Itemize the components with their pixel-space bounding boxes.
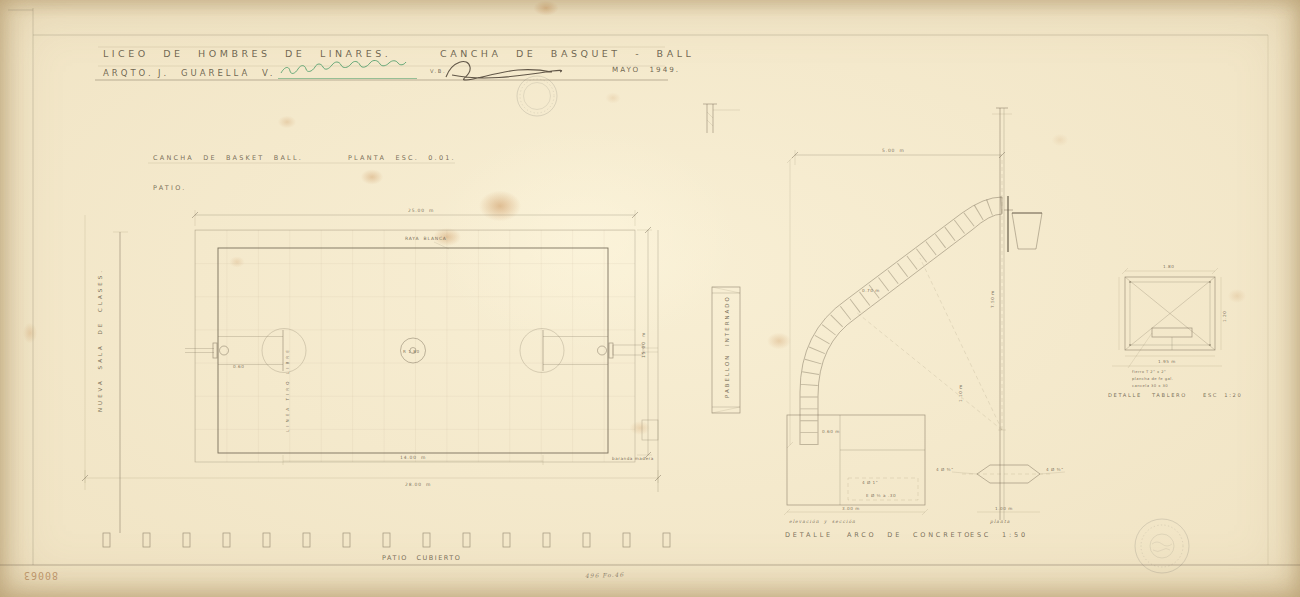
- board-dim-bottom: 1.95 m: [1158, 359, 1176, 364]
- board-dim-top: 1.80: [1163, 264, 1174, 269]
- plate-rebar-left: 4 Ø ¾": [936, 467, 954, 472]
- visa-label: V.B.: [430, 68, 446, 74]
- pavilion-wall: PABELLON INTERNADO: [712, 287, 740, 413]
- arch-caption: DETALLE ARCO DE CONCRETO ESC 1:50: [785, 531, 1028, 539]
- patio-label: PATIO.: [153, 184, 186, 192]
- center-radius-label: R 1.80: [403, 349, 420, 354]
- foundation-elevation: 0.60 m 4 Ø 1" E Ø ¼ a .30 3.00 m elevaci…: [784, 415, 928, 524]
- arch-caption-label: DETALLE: [785, 531, 833, 539]
- colonnade: PATIO CUBIERTO: [103, 533, 670, 562]
- drawing-title: CANCHA DE BASQUET - BALL: [440, 48, 694, 59]
- board-note-2: plancha de fe gal.: [1132, 376, 1173, 381]
- board-dim-right: 1.20: [1222, 311, 1227, 322]
- arch-dim-height: 7.50 m: [990, 290, 995, 308]
- arch-dim-base: 1.10 m: [958, 384, 963, 402]
- architect-name: J. GUARELLA V.: [157, 68, 275, 78]
- drawing-sheet: LICEO DE HOMBRES DE LINARES. CANCHA DE B…: [0, 0, 1300, 597]
- white-line-note: RAYA BLANCA: [405, 236, 447, 241]
- arch-dimensions: 5.00 m 7.50 m 1.10 m: [787, 148, 1005, 448]
- free-throw-note: LINEA TIRO LIBRE: [285, 347, 290, 432]
- board-caption-subject: TABLERO: [1151, 392, 1187, 398]
- rebar-stirrup-note: E Ø ¼ a .30: [866, 493, 896, 498]
- architect-signature: [278, 60, 417, 78]
- arch-dim-span: 5.00 m: [882, 148, 905, 153]
- arch-band: 0.70 m: [800, 197, 1006, 445]
- bottom-annotations: 80063 496 Fo.46: [23, 519, 1189, 581]
- project-title: LICEO DE HOMBRES DE LINARES.: [103, 48, 391, 59]
- plate-rebar-right: 4 Ø ¾": [1046, 467, 1064, 472]
- board-note-1: fierro T 2" x 2": [1132, 369, 1166, 374]
- elevation-label: elevación y sección: [789, 519, 856, 524]
- dim-top: 25.00 m: [408, 208, 434, 213]
- plan-scale: PLANTA ESC. 0.01.: [348, 154, 456, 162]
- board-caption: DETALLE TABLERO ESC 1:20: [1108, 392, 1242, 398]
- dim-right: 15.00 m: [641, 332, 646, 358]
- planta-label: planta: [989, 519, 1010, 524]
- plan-caption: CANCHA DE BASKET BALL.: [153, 154, 303, 162]
- base-plate-plan: 4 Ø ¾" 4 Ø ¾" 1.00 m planta: [936, 465, 1065, 524]
- board-caption-scale: ESC 1:20: [1203, 392, 1242, 398]
- board-note-3: cancela 30 x 30: [1132, 383, 1168, 388]
- arch-detail: PABELLON INTERNADO 0.70 m 5.00 m 7.50 m …: [712, 108, 1065, 539]
- basket-net: [1012, 213, 1042, 249]
- title-block: LICEO DE HOMBRES DE LINARES. CANCHA DE B…: [95, 47, 694, 116]
- arch-caption-subject: ARCO DE CONCRETO: [847, 531, 972, 539]
- column-section-detail: [703, 104, 740, 133]
- plate-dim: 1.00 m: [995, 506, 1013, 511]
- dim-bottom-outer: 28.00 m: [405, 482, 431, 487]
- archive-number: 80063: [23, 570, 58, 581]
- arch-caption-scale: ESC 1:50: [970, 531, 1028, 539]
- hoop-dim-label: 0.60: [233, 364, 244, 369]
- date-label: MAYO 1949.: [612, 65, 680, 74]
- corner-note: baranda madera: [612, 456, 654, 461]
- arch-dim-band: 0.70 m: [862, 288, 880, 293]
- arch-dim-depth: 0.60 m: [822, 429, 840, 434]
- pavilion-label: PABELLON INTERNADO: [724, 295, 730, 398]
- basket-pole: [992, 108, 1013, 520]
- court-plan: CANCHA DE BASKET BALL. PLANTA ESC. 0.01.…: [82, 154, 661, 533]
- backboard-detail: 1.80 1.20 1.95 m fierro T 2" x 2" planch…: [1108, 264, 1242, 398]
- reference-note: 496 Fo.46: [585, 571, 625, 579]
- architect-label: ARQTO.: [103, 68, 154, 78]
- left-wing-label: NUEVA SALA DE CLASES.: [97, 268, 103, 412]
- approval-stamp: [517, 76, 557, 116]
- board-caption-label: DETALLE: [1108, 392, 1142, 398]
- rebar-main-note: 4 Ø 1": [862, 480, 878, 485]
- dim-bottom-inner: 14.00 m: [400, 455, 426, 460]
- covered-patio-label: PATIO CUBIERTO: [382, 554, 461, 562]
- footing-dim: 3.00 m: [842, 506, 860, 511]
- court-grid: [195, 230, 635, 462]
